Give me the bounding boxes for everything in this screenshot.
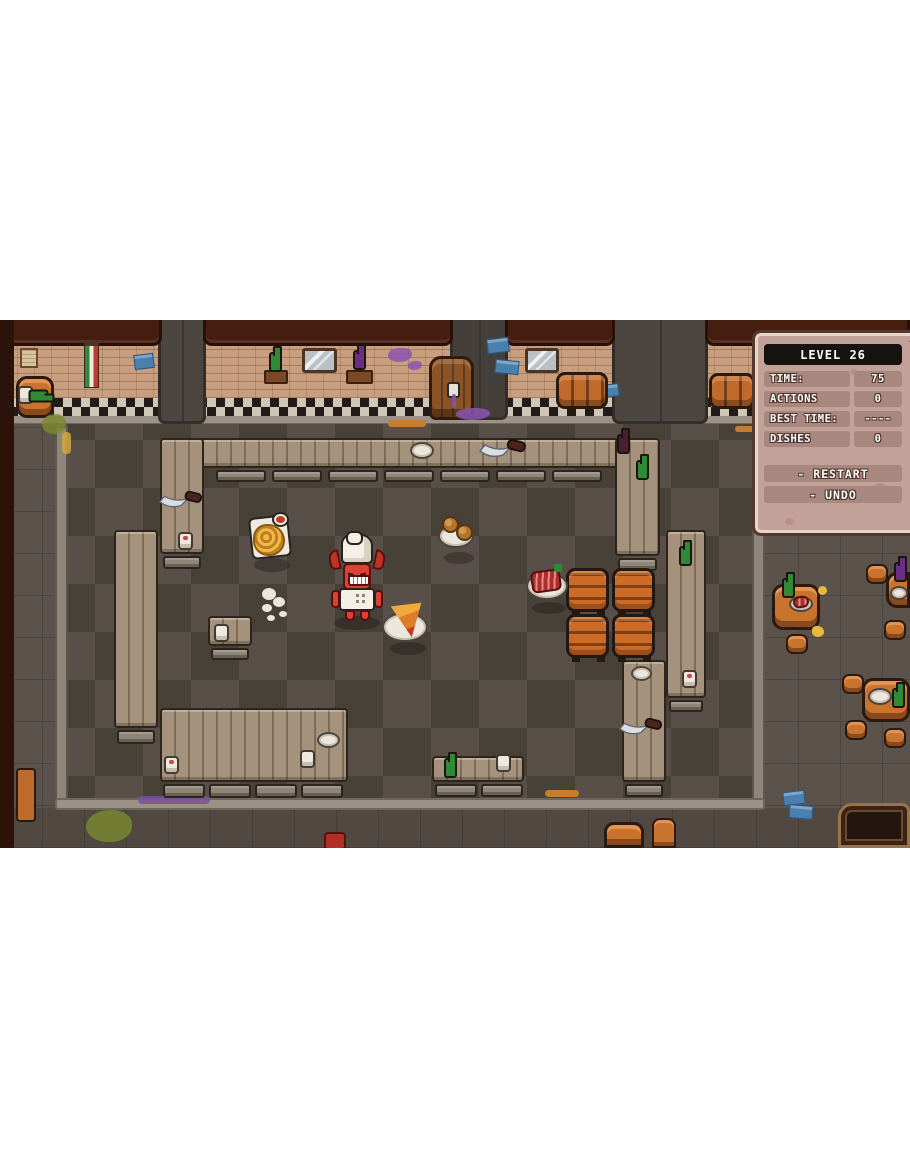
dishes-label: DISHES [764,431,850,447]
green-bottle-icon [679,546,692,566]
bench [163,784,205,798]
orange-paint-streak [388,420,426,427]
lying-barrel [709,373,755,409]
bench [669,700,703,712]
cup-icon [178,532,193,550]
cup-icon [682,670,697,688]
plate-icon [317,732,340,748]
red-box [324,832,346,848]
green-splat [86,810,132,842]
bench [301,784,343,798]
dishes-value: 0 [854,431,902,447]
plate-icon [410,442,434,459]
wall-frame-segment [203,320,453,346]
knife-icon [618,714,664,740]
stool [884,620,906,640]
bottom-walkway [0,808,910,848]
green-bottle-icon [444,758,457,778]
hud-row-time: TIME: 75 [764,371,902,387]
orange-pillar [16,768,36,822]
devil-arm [374,590,383,608]
hud-row-dishes: DISHES 0 [764,431,902,447]
devil-horn [372,549,387,571]
bench [481,784,523,797]
purple-bottle-icon [894,562,907,582]
blue-notes [494,359,519,375]
best-time-label: BEST TIME: [764,411,850,427]
stool [845,720,867,740]
stool [842,674,864,694]
letterbox-bottom [0,848,910,1155]
level-title: LEVEL 26 [764,344,902,365]
plate-icon [631,666,652,681]
bench [496,470,546,482]
game-screenshot: LEVEL 26 TIME: 75 ACTIONS 0 BEST TIME: -… [0,0,910,1155]
devil-leg [360,610,370,621]
doorway-left [158,320,206,424]
hud-panel: LEVEL 26 TIME: 75 ACTIONS 0 BEST TIME: -… [752,330,910,536]
storage-barrel [612,614,655,658]
game-viewport[interactable]: LEVEL 26 TIME: 75 ACTIONS 0 BEST TIME: -… [0,320,910,848]
bench [552,470,602,482]
bench [163,556,201,569]
letterbox-top [0,0,910,320]
devil-chef [328,534,386,622]
chef-apron [339,588,375,611]
bench [117,730,155,744]
best-time-value: ---- [854,411,902,427]
bench [440,470,490,482]
plate-icon [868,688,892,705]
italian-flag [84,342,99,388]
shadow [390,642,426,655]
window [302,348,337,373]
time-value: 75 [854,371,902,387]
actions-label: ACTIONS [764,391,850,407]
blue-notes [486,337,510,355]
dark-bottle-icon [617,434,630,454]
actions-value: 0 [854,391,902,407]
storage-barrel [566,568,609,612]
counter-right-upper [615,438,660,556]
hud-row-actions: ACTIONS 0 [764,391,902,407]
counter-top [160,438,622,468]
steam-puff [262,588,276,600]
chef-hat [341,534,373,564]
dark-corner-table [838,803,910,848]
bench [435,784,477,797]
undo-button[interactable]: - UNDO [764,486,902,503]
cup-icon [214,624,229,642]
devil-mouth [348,575,370,586]
stool [786,634,808,654]
room-wall-left [55,426,68,808]
bottle-shelf [346,370,373,384]
doorway-right [612,320,708,424]
bench [209,784,251,798]
bench [211,648,249,660]
green-bottle-icon [269,352,282,372]
bench [272,470,322,482]
blue-notes [133,353,155,370]
hud-row-best-time: BEST TIME: ---- [764,411,902,427]
plate-icon [890,586,908,600]
storage-barrel [566,614,609,658]
restart-button[interactable]: - RESTART [764,465,902,482]
garnish-icon [554,564,562,572]
wall-frame-segment [0,320,162,346]
time-label: TIME: [764,371,850,387]
meatball-icon [456,524,473,541]
green-spill [42,414,66,434]
wine-drip [452,394,456,408]
orange-paint-streak [545,790,579,797]
window [525,348,559,373]
bench [216,470,266,482]
fries-icon [253,524,285,556]
banana-peel [812,626,824,637]
dining-table-partial [604,822,644,848]
knife-icon [158,488,204,512]
green-bottle-icon [892,688,905,708]
green-bottle-icon [636,460,649,480]
bench [328,470,378,482]
stool [866,564,888,584]
knife-icon [478,436,528,462]
counter-far-left [114,530,158,728]
devil-leg [345,610,355,621]
cup-icon [300,750,315,768]
coin-crumb [818,586,827,595]
cup-icon [164,756,179,774]
stool-partial [652,818,676,848]
yellow-paint-streak [62,432,71,454]
sauce-cup-icon [272,512,289,527]
purple-bottle-icon [353,350,366,370]
bench [384,470,434,482]
wall-frame-segment [505,320,615,346]
devil-horn [327,549,342,571]
stool [884,728,906,748]
screen-edge-shadow [0,320,14,848]
shadow [254,558,290,572]
devil-face [343,563,371,590]
bench [255,784,297,798]
green-bottle-icon [782,578,795,598]
blue-notes [788,804,813,820]
shadow [444,552,474,564]
bench [625,784,663,797]
shadow [532,602,566,614]
green-bottle-icon [29,390,49,403]
cup-icon [496,754,511,772]
bottle-shelf [264,370,288,384]
storage-barrel [612,568,655,612]
lying-barrel [556,372,608,409]
paper-stack [20,348,38,368]
